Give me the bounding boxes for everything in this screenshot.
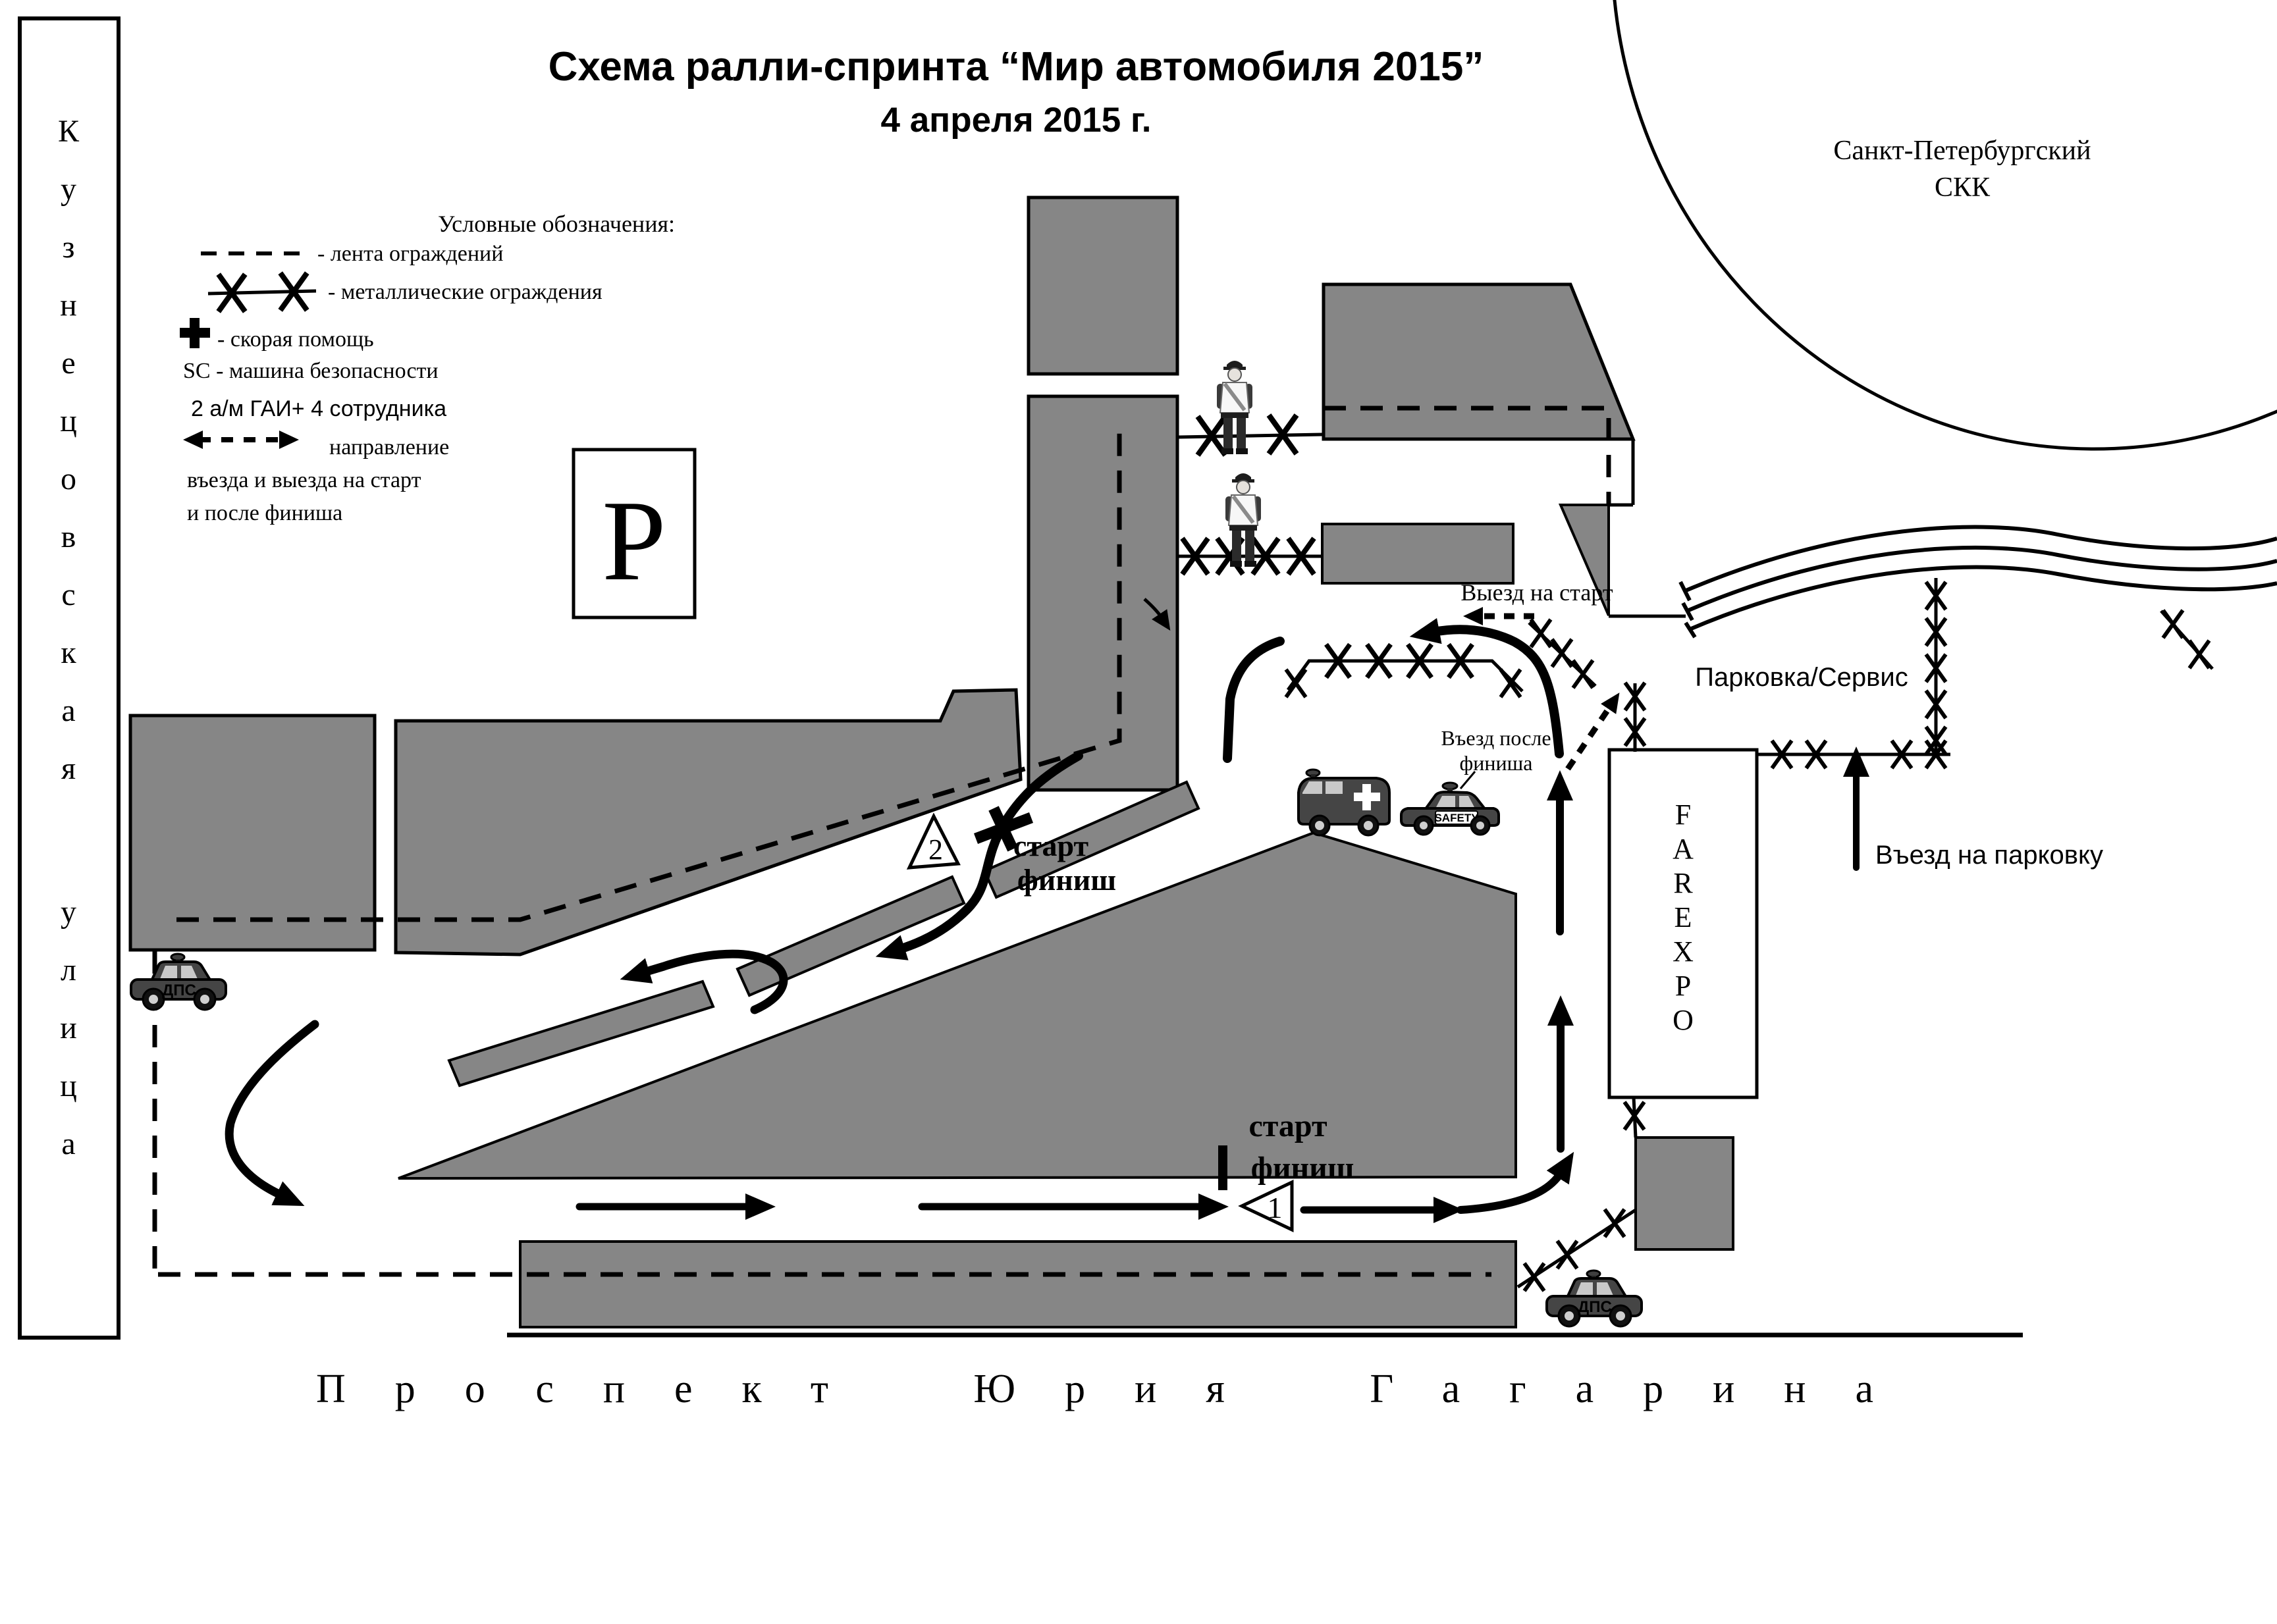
skk-label-line1: Санкт-Петербургский — [1833, 136, 2091, 166]
after-finish-label-line2: финиша — [1460, 751, 1533, 775]
chicane-bar-3 — [449, 982, 713, 1086]
start-line-bar-1 — [1218, 1145, 1227, 1190]
safety-car: SAFETY — [1401, 783, 1499, 835]
parking-sign-letter: Р — [602, 477, 666, 604]
skk-building-outline — [1612, 0, 2277, 449]
building-bottom-strip — [520, 1242, 1516, 1327]
building-left — [130, 716, 375, 950]
legend-metal-label: - металлические ограждения — [328, 280, 603, 304]
metal-sample-line — [208, 291, 316, 294]
legend-heading: Условные обозначения: — [438, 211, 675, 237]
skk-label-line2: СКК — [1935, 172, 1991, 203]
building-trapezoid — [1324, 284, 1633, 439]
trapezoid-step-lines — [1609, 439, 1633, 505]
boomerang-arrow — [229, 1024, 315, 1195]
building-top-b — [1029, 396, 1177, 790]
parking-sign-box: Р — [574, 450, 695, 617]
page-title-line1: Схема ралли-спринта “Мир автомобиля 2015… — [549, 44, 1484, 90]
finish1-label: финиш — [1251, 1151, 1354, 1186]
checkpoint-1-number: 1 — [1268, 1191, 1283, 1224]
farexpo-label: FAREXPO — [1673, 799, 1694, 1036]
building-top-a — [1029, 197, 1177, 374]
turn-up-arrow — [1460, 1173, 1561, 1210]
legend-tape-label: - лента ограждений — [317, 242, 503, 266]
ambulance-cross-icon — [180, 318, 210, 348]
exit-to-start-label: Выезд на старт — [1460, 579, 1613, 606]
police-car-2: ДПС — [1547, 1270, 1642, 1326]
rally-scheme-page: FAREXPO Р — [0, 0, 2277, 1624]
legend-direction-label3: и после финиша — [187, 501, 342, 525]
police-car-1: ДПС — [131, 954, 226, 1010]
hook-curve — [1227, 641, 1280, 758]
after-finish-arrow — [1568, 706, 1611, 769]
police-car-2-label: ДПС — [1578, 1298, 1612, 1316]
traffic-officer-1 — [1217, 361, 1252, 454]
finish2-label: финиш — [1017, 863, 1116, 897]
legend-police-label: 2 а/м ГАИ+ 4 сотрудника — [191, 396, 446, 421]
building-square-farexpo-south — [1636, 1138, 1733, 1249]
building-small-top — [1322, 524, 1513, 583]
page-title-line2: 4 апреля 2015 г. — [881, 101, 1152, 140]
start1-label: старт — [1248, 1109, 1327, 1143]
police-car-1-label: ДПС — [162, 982, 196, 999]
parking-service-label: Парковка/Сервис — [1695, 663, 1908, 692]
legend-ambulance-label: - скорая помощь — [217, 327, 374, 352]
start2-label: старт — [1013, 829, 1089, 862]
checkpoint-2-number: 2 — [928, 833, 943, 866]
farexpo-building: FAREXPO — [1609, 750, 1757, 1097]
legend-direction-label2: въезда и выезда на старт — [187, 468, 421, 492]
parking-entry-label: Въезд на парковку — [1875, 841, 2103, 870]
legend-safety-label: SC - машина безопасности — [183, 359, 439, 383]
gagarina-avenue-label: Проспект Юрия Гагарина — [316, 1367, 1923, 1411]
legend-direction-label1: направление — [329, 435, 449, 459]
ambulance-car — [1299, 770, 1389, 835]
after-finish-label-line1: Въезд после — [1441, 726, 1551, 750]
